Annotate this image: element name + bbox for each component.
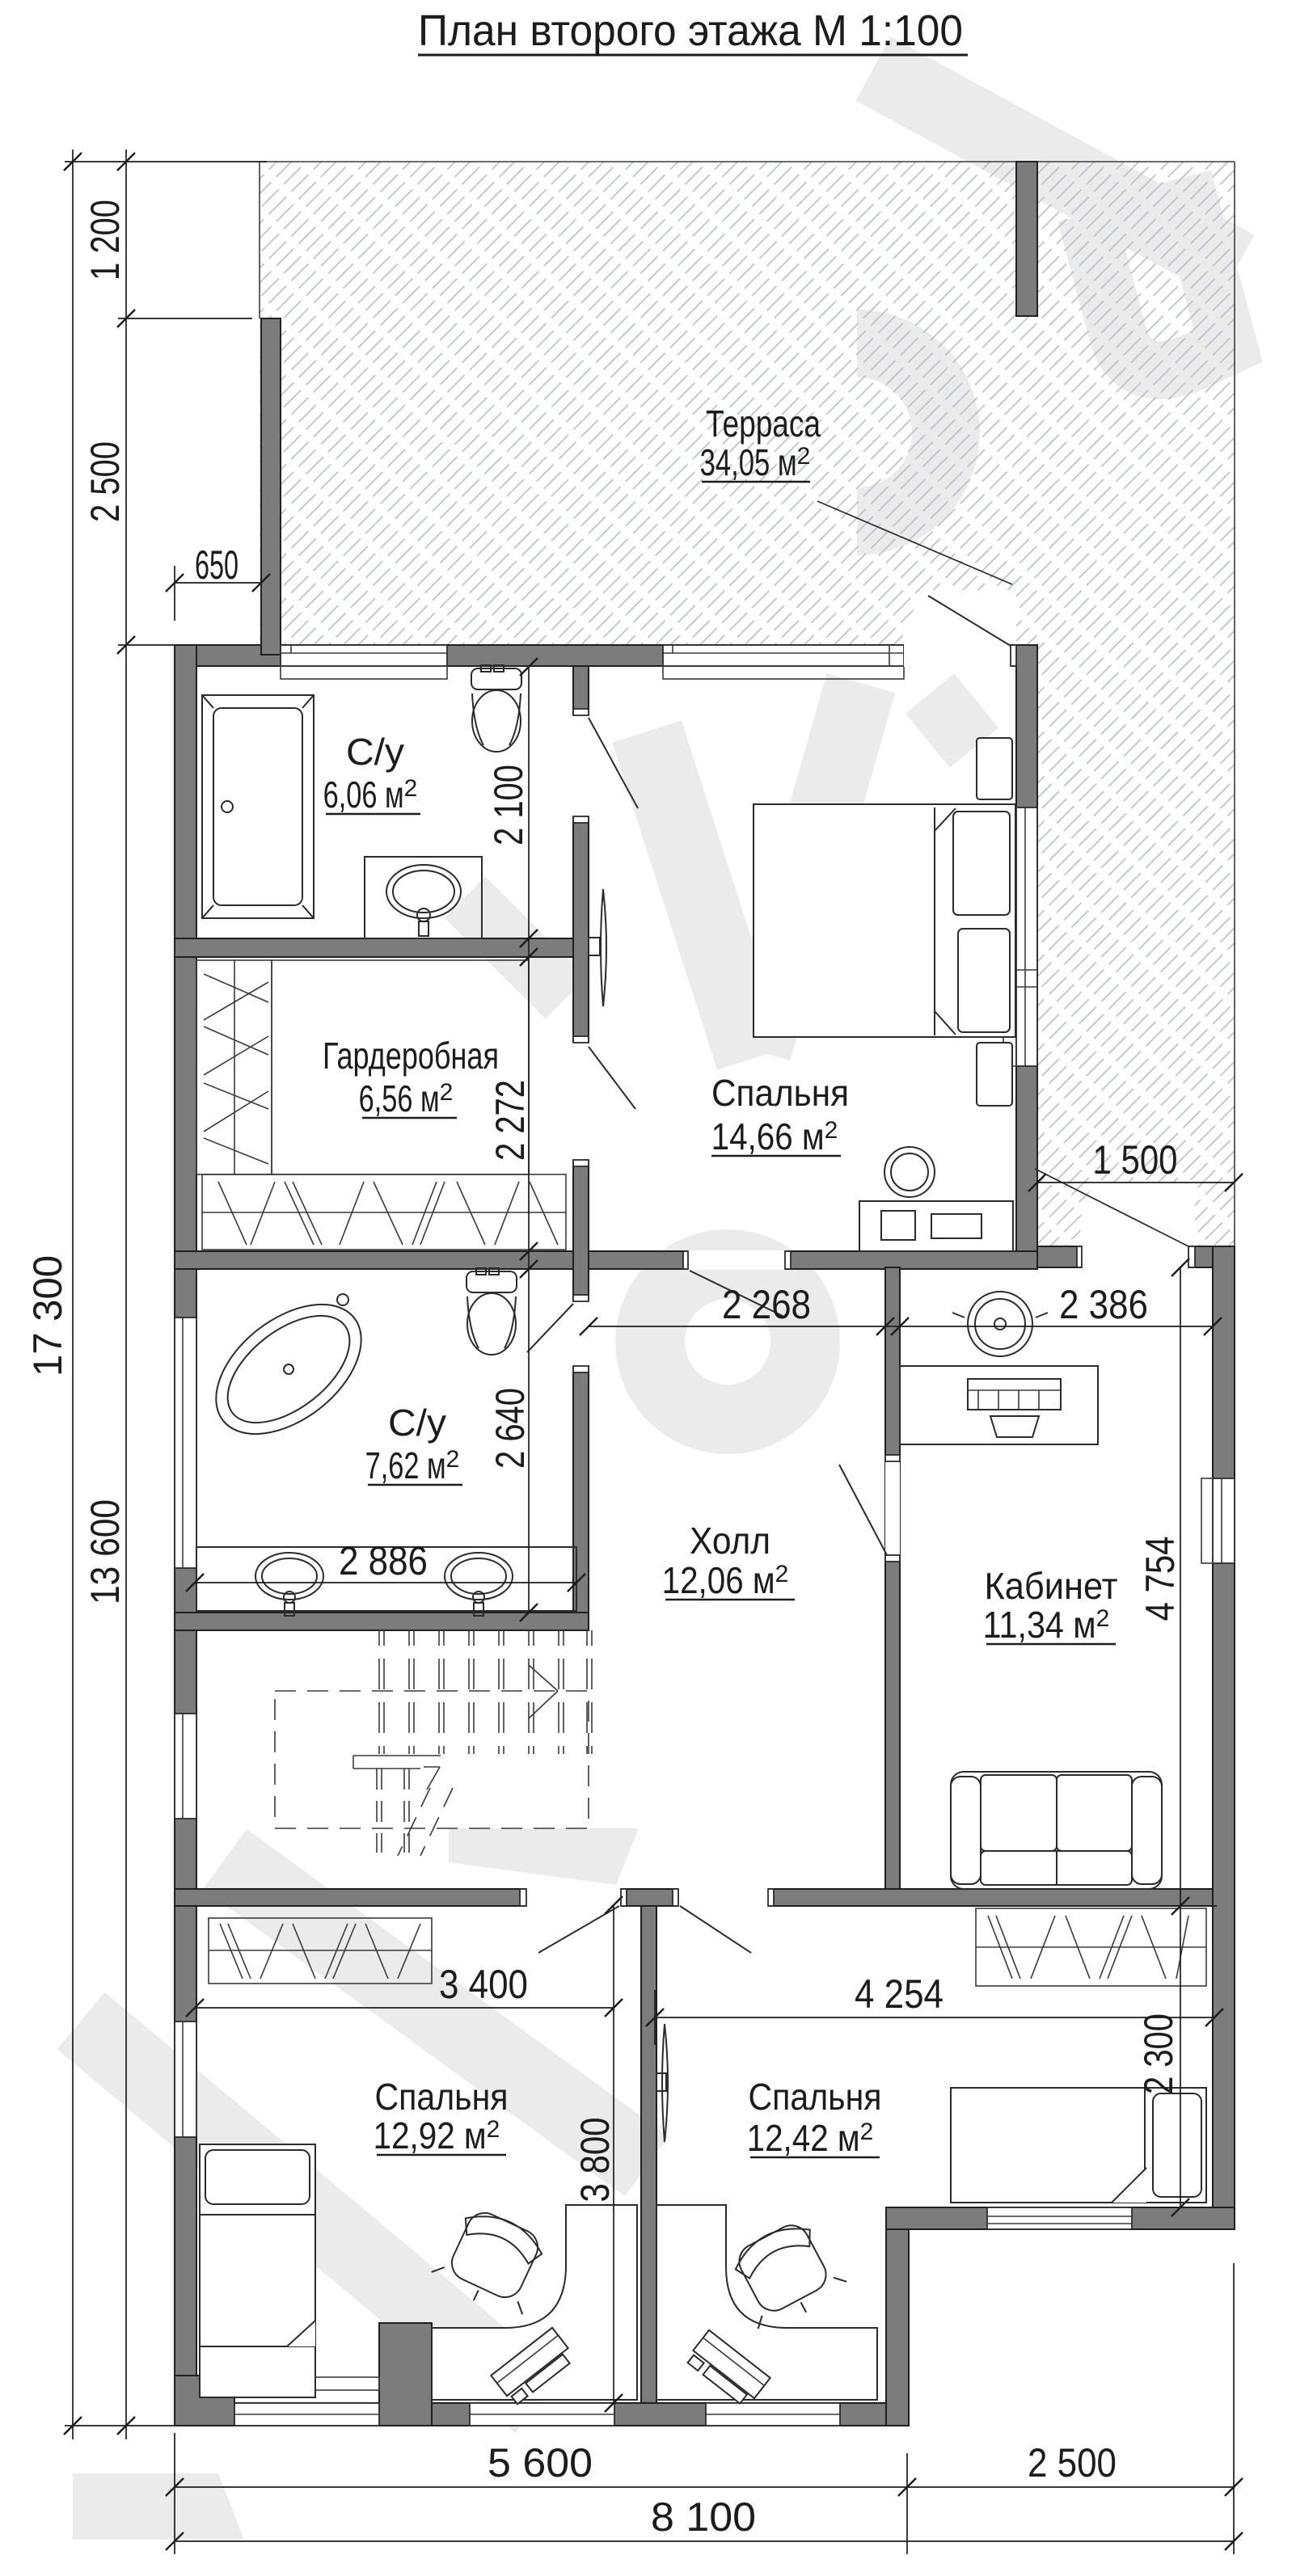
svg-text:4 754: 4 754 <box>1138 1537 1183 1621</box>
svg-text:17 300: 17 300 <box>25 1255 70 1377</box>
svg-text:1 200: 1 200 <box>82 200 128 280</box>
svg-text:Гардеробная: Гардеробная <box>323 1035 499 1077</box>
svg-text:Спальня: Спальня <box>711 1072 849 1114</box>
svg-text:Кабинет: Кабинет <box>985 1565 1118 1607</box>
svg-text:С/у: С/у <box>388 1402 446 1444</box>
svg-text:2 268: 2 268 <box>722 1282 811 1327</box>
svg-text:7,62 м2: 7,62 м2 <box>365 1444 460 1486</box>
svg-text:6,06 м2: 6,06 м2 <box>323 774 418 816</box>
svg-text:2 886: 2 886 <box>339 1538 428 1583</box>
svg-text:13 600: 13 600 <box>82 1499 128 1604</box>
svg-text:3 400: 3 400 <box>439 1962 528 2007</box>
svg-text:1 500: 1 500 <box>1093 1137 1178 1183</box>
svg-text:12,06 м2: 12,06 м2 <box>662 1559 789 1601</box>
svg-text:План второго этажа М 1:100: План второго этажа М 1:100 <box>418 6 963 55</box>
svg-text:2 300: 2 300 <box>1136 2013 1181 2094</box>
svg-text:Спальня: Спальня <box>749 2076 882 2118</box>
svg-text:3 800: 3 800 <box>572 2118 618 2203</box>
svg-text:2 500: 2 500 <box>82 441 128 522</box>
svg-text:2 386: 2 386 <box>1059 1282 1148 1327</box>
svg-text:Терраса: Терраса <box>706 403 821 445</box>
svg-text:2 500: 2 500 <box>1028 2440 1117 2485</box>
svg-text:С/у: С/у <box>346 731 404 773</box>
svg-text:650: 650 <box>195 542 239 588</box>
svg-text:34,05 м2: 34,05 м2 <box>700 441 811 483</box>
svg-text:8 100: 8 100 <box>651 2494 756 2540</box>
svg-text:14,66 м2: 14,66 м2 <box>711 1115 838 1157</box>
svg-text:Холл: Холл <box>690 1520 770 1562</box>
svg-text:4 254: 4 254 <box>855 1971 944 2017</box>
svg-text:2 272: 2 272 <box>488 1080 533 1161</box>
svg-text:6,56 м2: 6,56 м2 <box>359 1077 454 1119</box>
svg-text:12,92 м2: 12,92 м2 <box>374 2114 500 2157</box>
svg-text:5 600: 5 600 <box>488 2440 593 2485</box>
svg-text:Спальня: Спальня <box>375 2076 509 2118</box>
svg-text:2 640: 2 640 <box>488 1388 533 1469</box>
svg-text:11,34 м2: 11,34 м2 <box>983 1604 1110 1646</box>
svg-text:12,42 м2: 12,42 м2 <box>747 2117 874 2159</box>
svg-text:2 100: 2 100 <box>486 765 531 845</box>
